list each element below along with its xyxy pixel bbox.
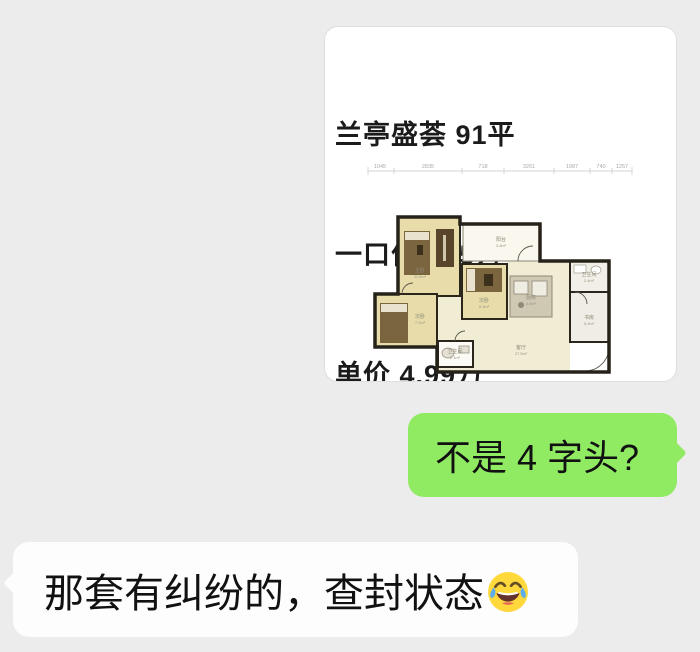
svg-text:27.5m²: 27.5m² [515,351,528,356]
svg-text:5.2m²: 5.2m² [584,321,595,326]
svg-text:7.2m²: 7.2m² [415,320,426,325]
image-message[interactable]: 兰亭盛荟 91平 一口价 455万 单价 4.99万 1045 [324,26,677,382]
svg-text:书房: 书房 [584,314,594,321]
chat-screen: 兰亭盛荟 91平 一口价 455万 单价 4.99万 1045 [0,0,700,652]
face-with-tears-of-joy-emoji [487,571,529,613]
svg-text:1987: 1987 [566,164,578,170]
incoming-message-text: 那套有纠纷的，查封状态 [44,561,484,619]
svg-text:阳台: 阳台 [496,236,506,243]
svg-text:次卧: 次卧 [415,313,425,320]
svg-text:主卧: 主卧 [415,267,425,274]
svg-text:3.3m²: 3.3m² [496,243,507,248]
svg-text:740: 740 [596,164,605,170]
svg-text:客厅: 客厅 [516,344,526,351]
svg-text:8.3m²: 8.3m² [479,304,490,309]
svg-text:卫生间: 卫生间 [447,348,462,355]
svg-text:厨房: 厨房 [526,294,536,301]
bubble-tail-left [3,570,28,595]
svg-text:2.1m²: 2.1m² [450,355,461,360]
svg-text:3261: 3261 [523,164,535,170]
floor-plan-image: 1045 2835 718 3261 1987 740 1257 [358,157,644,379]
svg-text:次卧: 次卧 [479,297,489,304]
svg-text:718: 718 [478,164,487,170]
svg-text:1257: 1257 [616,164,628,170]
svg-text:4.6m²: 4.6m² [526,301,537,306]
svg-text:2835: 2835 [422,164,434,170]
outgoing-message-bubble[interactable]: 不是 4 字头? [408,413,677,497]
bubble-tail-right [661,440,686,465]
svg-text:1045: 1045 [374,164,386,170]
svg-text:卫生间: 卫生间 [581,271,596,278]
svg-text:2.4m²: 2.4m² [584,278,595,283]
svg-text:11.5m²: 11.5m² [414,274,427,279]
listing-line-1: 兰亭盛荟 91平 [335,115,516,155]
outgoing-message-text: 不是 4 字头? [435,429,639,481]
floor-plan-dimension-ruler: 1045 2835 718 3261 1987 740 1257 [368,164,632,175]
incoming-message-bubble[interactable]: 那套有纠纷的，查封状态 [13,542,578,637]
